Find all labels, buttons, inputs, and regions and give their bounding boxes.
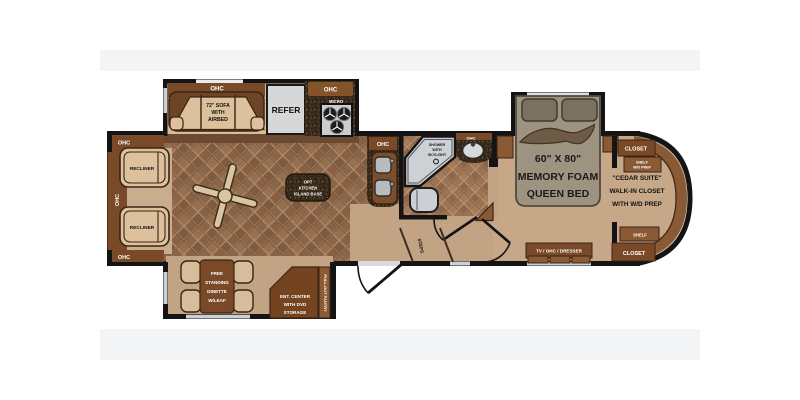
svg-text:OHC: OHC: [377, 142, 389, 148]
svg-text:W/LEAF: W/LEAF: [208, 298, 226, 303]
svg-text:OHC: OHC: [118, 255, 130, 261]
svg-text:W/D PREP: W/D PREP: [633, 166, 651, 170]
svg-text:OHC: OHC: [115, 194, 121, 206]
svg-text:"CEDAR SUITE": "CEDAR SUITE": [612, 175, 661, 182]
svg-text:QUEEN BED: QUEEN BED: [527, 188, 590, 200]
svg-text:WITH DVD: WITH DVD: [284, 302, 307, 307]
svg-text:OHC: OHC: [324, 88, 338, 94]
svg-text:OHC: OHC: [118, 141, 130, 147]
svg-text:PULL-OUT PANTRY: PULL-OUT PANTRY: [323, 274, 328, 312]
svg-text:60" X 80": 60" X 80": [535, 153, 581, 165]
svg-text:STANDING: STANDING: [205, 280, 229, 285]
svg-text:REFER: REFER: [272, 105, 301, 115]
svg-text:ENT. CENTER: ENT. CENTER: [280, 294, 311, 299]
svg-text:WITH W/D PREP: WITH W/D PREP: [612, 201, 662, 208]
svg-text:RECLINER: RECLINER: [130, 225, 155, 231]
svg-text:SHOWER: SHOWER: [429, 143, 446, 147]
svg-text:AIRBED: AIRBED: [208, 117, 228, 123]
svg-text:SHELF: SHELF: [633, 233, 647, 238]
svg-text:STORAGE: STORAGE: [284, 310, 307, 315]
svg-text:FREE: FREE: [211, 271, 223, 276]
svg-text:72" SOFA: 72" SOFA: [206, 103, 230, 109]
svg-text:OHC: OHC: [467, 136, 476, 141]
svg-text:SHELF: SHELF: [636, 161, 649, 165]
svg-text:DINETTE: DINETTE: [207, 289, 227, 294]
svg-text:CLOSET: CLOSET: [623, 251, 646, 257]
svg-text:SKYLIGHT: SKYLIGHT: [428, 153, 447, 157]
svg-text:OPT: OPT: [304, 180, 313, 185]
svg-text:WITH: WITH: [211, 110, 225, 116]
svg-text:WALK-IN CLOSET: WALK-IN CLOSET: [609, 188, 664, 195]
svg-text:ISLAND BASE: ISLAND BASE: [294, 192, 323, 197]
svg-text:TV / OHC / DRESSER: TV / OHC / DRESSER: [536, 249, 583, 254]
svg-text:MEMORY FOAM: MEMORY FOAM: [518, 171, 599, 183]
svg-text:KITCHEN: KITCHEN: [299, 186, 318, 191]
svg-text:WITH: WITH: [432, 148, 442, 152]
svg-text:RECLINER: RECLINER: [130, 166, 155, 172]
svg-text:CLOSET: CLOSET: [625, 147, 648, 153]
